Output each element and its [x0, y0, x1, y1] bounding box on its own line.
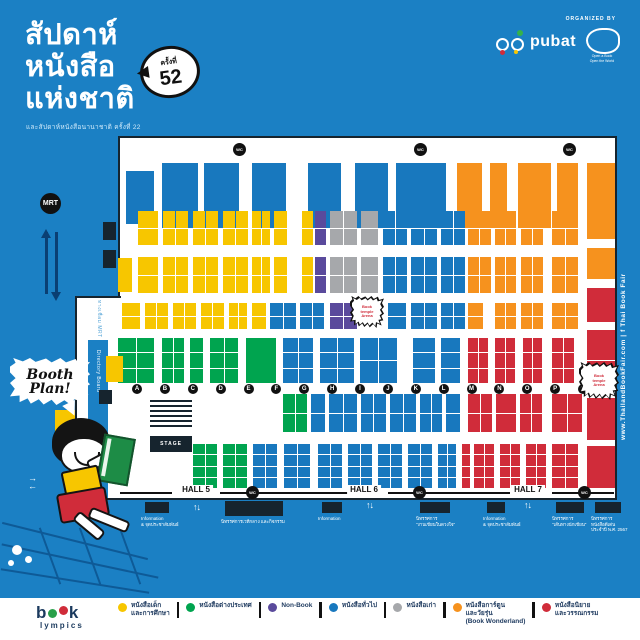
booth-cell: [388, 317, 406, 330]
booth-cell: [533, 211, 544, 228]
booth-cell: [361, 229, 378, 246]
booth: [587, 163, 615, 239]
booth-cell: [361, 257, 378, 275]
booth-cell: [404, 414, 417, 433]
booth-cell: [411, 276, 424, 294]
booth: [145, 303, 168, 329]
booth-cell: [190, 353, 203, 367]
booth: [252, 211, 270, 245]
booth-cell: [441, 211, 453, 228]
pubat-logo-dot-green: [517, 30, 523, 36]
booklympics-logo-sub: lympics: [40, 621, 84, 630]
booth-cell: [533, 317, 544, 330]
booth-cell: [532, 394, 543, 413]
booth: [523, 338, 542, 383]
bubble-line-2: Plan!: [29, 382, 70, 396]
booth: [311, 394, 325, 432]
toilet-icon: WC: [233, 143, 246, 156]
booth-cell: [313, 317, 325, 330]
booth-cell: [283, 414, 295, 433]
booth-cell: [252, 317, 266, 330]
booth-cell: [361, 394, 373, 413]
booth-cell: [408, 467, 420, 477]
booth-cell: [523, 353, 532, 367]
booth-cell: [500, 467, 510, 477]
booth-cell: [454, 257, 466, 275]
escalator-arrows-icon: ↑↓: [366, 500, 373, 510]
booth-cell: [396, 229, 408, 246]
booth-cell: [411, 257, 424, 275]
legend-separator: [319, 602, 322, 618]
booth-cell: [348, 455, 360, 465]
booth: [441, 338, 460, 383]
booth-cell: [391, 467, 403, 477]
booth-cell: [468, 414, 480, 433]
booth-cell: [223, 467, 235, 477]
booth: [378, 444, 402, 488]
booth: [106, 356, 123, 382]
booth: [441, 257, 465, 293]
entrance-gate-box: [103, 222, 116, 240]
booth-cell: [564, 369, 575, 383]
booth-cell: [511, 467, 521, 477]
booth: [552, 257, 578, 293]
booth-cell: [283, 394, 295, 413]
escalator-arrows-icon: ↑↓: [524, 500, 531, 510]
booth-cell: [176, 276, 188, 294]
booth-cell: [274, 211, 287, 228]
legend-color-dot: [329, 603, 338, 612]
booth-cell: [361, 467, 373, 477]
booth-cell: [506, 303, 516, 316]
booth-cell: [495, 369, 505, 383]
booth: [253, 444, 277, 488]
booth-cell: [552, 303, 565, 316]
booth-cell: [485, 478, 495, 488]
booth-cell: [210, 353, 224, 367]
booth-cell: [462, 444, 470, 454]
logo-dot-green: [48, 609, 57, 618]
booth: [302, 257, 313, 293]
booth-cell: [223, 211, 235, 228]
booth-cell: [432, 394, 443, 413]
booth-cell: [391, 455, 403, 465]
legend-label: หนังสือต่างประเทศ: [199, 602, 252, 610]
booth-cell: [330, 229, 343, 246]
legend-label: หนังสือเด็กและการศึกษา: [131, 602, 170, 618]
booth-cell: [201, 317, 212, 330]
hall-divider-line: [388, 492, 510, 494]
legend-label: Non-Book: [281, 602, 312, 610]
booth-cell: [454, 229, 466, 246]
booth-cell: [145, 317, 156, 330]
booth: [223, 444, 247, 488]
booth: [284, 444, 310, 488]
booth-cell: [374, 394, 386, 413]
booth: [302, 211, 313, 245]
booth-cell: [163, 257, 175, 275]
booth-cell: [421, 467, 433, 477]
edition-badge: ครั้งที่ 52: [137, 42, 204, 102]
booth: [329, 394, 357, 432]
booth-cell: [566, 229, 579, 246]
mrt-arrow-up: [45, 232, 48, 294]
booth-cell: [361, 211, 378, 228]
booth: [246, 338, 276, 383]
booth-cell: [413, 369, 435, 383]
booth-cell: [495, 303, 505, 316]
booth-cell: [566, 444, 579, 454]
booth-cell: [485, 444, 495, 454]
booth-cell: [533, 229, 544, 246]
booth-cell: [145, 303, 156, 316]
info-box: [145, 502, 169, 513]
booth-cell: [302, 229, 313, 246]
hall-label: HALL 6: [347, 485, 381, 494]
booth-cell: [361, 414, 373, 433]
booth-cell: [506, 317, 516, 330]
booth-cell: [454, 276, 466, 294]
booth-cell: [298, 444, 311, 454]
booth-cell: [480, 229, 491, 246]
booth-cell: [495, 338, 505, 352]
booth-cell: [523, 369, 532, 383]
booth: [383, 211, 407, 245]
booth-cell: [383, 229, 395, 246]
booth: [193, 211, 218, 245]
escalator-arrows-icon: ↑↓: [193, 502, 200, 512]
booth-cell: [587, 248, 615, 279]
booth-cell: [137, 369, 155, 383]
booth-cell: [520, 414, 531, 433]
booth-cell: [174, 338, 185, 352]
booth-cell: [185, 303, 196, 316]
booth-cell: [344, 211, 357, 228]
booth-cell: [378, 467, 390, 477]
title-line-2: หนังสือ: [25, 52, 135, 84]
booth: [420, 394, 442, 432]
booth-cell: [239, 317, 248, 330]
booth-cell: [302, 276, 313, 294]
logo-dot-red: [59, 606, 68, 615]
open-a-book-logo-icon: [586, 28, 620, 54]
booth: [201, 303, 224, 329]
toilet-icon: WC: [246, 486, 259, 499]
booth-cell: [391, 478, 403, 488]
booth-cell: [318, 478, 330, 488]
booth: [318, 444, 342, 488]
info-box: [225, 501, 283, 516]
mrt-arrow-up-head: [41, 224, 51, 238]
booth-cell: [193, 229, 205, 246]
booth-cell: [206, 276, 218, 294]
booth-cell: [348, 444, 360, 454]
booth: [283, 394, 307, 432]
booth-cell: [176, 211, 188, 228]
booth-cell: [223, 257, 235, 275]
booth-cell: [537, 467, 547, 477]
booth: [495, 338, 515, 383]
booth-cell: [495, 257, 505, 275]
booth-cell: [284, 478, 297, 488]
info-box: [322, 502, 342, 513]
booth-cell: [315, 257, 326, 275]
booth-cell: [441, 257, 453, 275]
booth-cell: [252, 303, 266, 316]
legend-color-dot: [268, 603, 277, 612]
aisle-letter-marker: M: [467, 384, 477, 394]
booth-cell: [446, 394, 460, 413]
booth-cell: [138, 257, 158, 275]
booth: [521, 303, 543, 329]
legend-color-dot: [542, 603, 551, 612]
booth-cell: [468, 276, 479, 294]
aisle-letter-marker: A: [132, 384, 142, 394]
booth: [587, 398, 615, 440]
directory-board-label: Directory Board: [95, 350, 101, 392]
title-line-3: แห่งชาติ: [25, 84, 135, 116]
booth-cell: [526, 444, 536, 454]
booth: [408, 444, 432, 488]
booth-cell: [390, 414, 403, 433]
booth-cell: [206, 211, 218, 228]
booth-cell: [552, 353, 563, 367]
booth-cell: [190, 338, 203, 352]
badge-star-text: BooktempleArena: [361, 305, 374, 318]
booth-cell: [330, 276, 343, 294]
booth: [252, 303, 266, 329]
booth-cell: [338, 369, 355, 383]
booth-cell: [408, 444, 420, 454]
booth-cell: [566, 478, 579, 488]
booth-cell: [284, 467, 297, 477]
booth: [173, 303, 196, 329]
booth-cell: [500, 444, 510, 454]
pubat-logo-dot-red: [500, 50, 505, 55]
booth-cell: [213, 303, 224, 316]
booth: [468, 211, 491, 245]
booth: [223, 211, 248, 245]
booth-cell: [480, 211, 491, 228]
booth-cell: [533, 369, 542, 383]
booth-cell: [320, 369, 337, 383]
booth-cell: [474, 444, 484, 454]
booth-cell: [568, 414, 583, 433]
toilet-icon: WC: [563, 143, 576, 156]
booth-cell: [344, 394, 358, 413]
booth-cell: [441, 353, 460, 367]
booth-cell: [313, 303, 325, 316]
booth-cell: [454, 211, 466, 228]
booth-cell: [521, 211, 532, 228]
booth-cell: [474, 467, 484, 477]
info-caption: นิทรรศการ"งานเขียนในดวงใจ": [416, 516, 468, 527]
booth-cell: [266, 455, 278, 465]
booth: [552, 444, 578, 488]
booth-cell: [446, 414, 460, 433]
booth-cell: [526, 455, 536, 465]
booth-cell: [162, 353, 173, 367]
booth-cell: [500, 478, 510, 488]
booth-cell: [425, 211, 438, 228]
booth-cell: [552, 257, 565, 275]
booth-cell: [246, 338, 276, 383]
booth-cell: [361, 444, 373, 454]
booth-cell: [344, 229, 357, 246]
booth-cell: [361, 276, 378, 294]
booth-cell: [252, 229, 261, 246]
title-line-1: สัปดาห์: [25, 20, 135, 52]
booth-cell: [193, 455, 205, 465]
booth-cell: [274, 276, 287, 294]
booth: [270, 303, 296, 329]
booth-cell: [225, 369, 239, 383]
legend-item: หนังสือการ์ตูนและวัยรุ่น(Book Wonderland…: [453, 602, 526, 626]
booth-cell: [236, 455, 248, 465]
booth-cell: [537, 444, 547, 454]
info-caption: Information& จุดประชาสัมพันธ์: [141, 516, 187, 527]
booth-cell: [348, 467, 360, 477]
poster-subtitle: และสัปดาห์หนังสือนานาชาติ ครั้งที่ 22: [26, 122, 141, 132]
booth-cell: [506, 338, 516, 352]
booth-cell: [566, 257, 579, 275]
booth-cell: [138, 229, 158, 246]
booth-cell: [190, 369, 203, 383]
booth-cell: [299, 353, 314, 367]
booth: [315, 257, 326, 293]
legend-item: หนังสือต่างประเทศ: [186, 602, 252, 612]
hall-divider-line: [220, 492, 348, 494]
edition-badge-number: 52: [158, 66, 183, 89]
booth-cell: [468, 317, 483, 330]
entrance-arrows-icon: →←: [28, 474, 37, 490]
dust-puff: [12, 545, 22, 555]
pubat-logo-dot-yellow: [514, 50, 518, 54]
booth-cell: [193, 211, 205, 228]
booth-cell: [331, 455, 343, 465]
booth-cell: [421, 444, 433, 454]
booth-cell: [236, 211, 248, 228]
booth-cell: [411, 317, 424, 330]
booth: [210, 338, 238, 383]
booth-cell: [163, 229, 175, 246]
booth-cell: [420, 414, 431, 433]
booth-cell: [193, 257, 205, 275]
booth-cell: [331, 444, 343, 454]
booth-plan-speech-bubble: Booth Plan!: [10, 358, 90, 406]
booth: [320, 338, 354, 383]
booth-cell: [441, 338, 460, 352]
booth: [474, 444, 494, 488]
booth: [413, 338, 435, 383]
booth-cell: [374, 414, 386, 433]
aisle-letter-marker: K: [411, 384, 421, 394]
book-fair-poster: สัปดาห์ หนังสือ แห่งชาติ ครั้งที่ 52 และ…: [0, 0, 640, 640]
booth-cell: [411, 229, 424, 246]
hall-label: HALL 5: [179, 485, 213, 494]
mrt-station-marker: MRT: [40, 193, 61, 214]
booth: [348, 444, 372, 488]
booth-cell: [413, 353, 435, 367]
booth-cell: [193, 467, 205, 477]
booth-cell: [299, 369, 314, 383]
booth-cell: [296, 394, 308, 413]
booth-cell: [122, 303, 140, 316]
booth-cell: [138, 211, 158, 228]
booth-cell: [438, 444, 447, 454]
legend-item: หนังสือเด็กและการศึกษา: [118, 602, 170, 618]
booth-cell: [298, 455, 311, 465]
booth-cell: [252, 276, 261, 294]
booth-cell: [552, 455, 565, 465]
booth-cell: [253, 467, 265, 477]
pubat-logo-icon: [511, 38, 524, 51]
booth-cell: [468, 229, 479, 246]
booth-cell: [330, 303, 343, 316]
booth-cell: [315, 211, 326, 228]
booth: [118, 338, 154, 383]
booth-cell: [118, 258, 132, 292]
badge-star-text: BooktempleArena: [593, 374, 606, 387]
booth-cell: [253, 455, 265, 465]
booth-cell: [311, 394, 325, 413]
booth-cell: [411, 303, 424, 316]
booth-cell: [552, 444, 565, 454]
booth-cell: [587, 163, 615, 239]
booth-cell: [552, 467, 565, 477]
booth-cell: [266, 478, 278, 488]
booth-cell: [566, 467, 579, 477]
booth-cell: [331, 467, 343, 477]
booth-cell: [266, 444, 278, 454]
mrt-arrow-down-head: [51, 292, 61, 306]
booth-cell: [495, 229, 505, 246]
booth-cell: [511, 455, 521, 465]
aisle-letter-marker: L: [439, 384, 449, 394]
booth-cell: [533, 353, 542, 367]
booth: [163, 211, 188, 245]
booth-cell: [162, 338, 173, 352]
booth: [252, 257, 270, 293]
booth-cell: [253, 444, 265, 454]
booth: [162, 338, 184, 383]
booth-cell: [441, 276, 453, 294]
booth: [122, 303, 140, 329]
booth-cell: [229, 317, 238, 330]
booth-cell: [425, 303, 438, 316]
book-temple-arena-badge: BooktempleArena: [350, 296, 384, 328]
booth-cell: [330, 257, 343, 275]
booth-cell: [587, 398, 615, 440]
booklympics-logo: b k: [36, 603, 79, 623]
booth-cell: [413, 338, 435, 352]
booth-cell: [552, 394, 567, 413]
info-box: [595, 502, 621, 513]
booth-cell: [390, 394, 403, 413]
booth-cell: [506, 211, 516, 228]
booth-cell: [296, 414, 308, 433]
aisle-letter-marker: B: [160, 384, 170, 394]
legend-separator: [177, 602, 180, 618]
booth: [411, 303, 437, 329]
booth-cell: [318, 444, 330, 454]
booth-cell: [176, 229, 188, 246]
booth-cell: [223, 478, 235, 488]
booth: [521, 211, 543, 245]
booth-cell: [479, 369, 489, 383]
booth-cell: [223, 455, 235, 465]
booth-cell: [379, 338, 397, 360]
